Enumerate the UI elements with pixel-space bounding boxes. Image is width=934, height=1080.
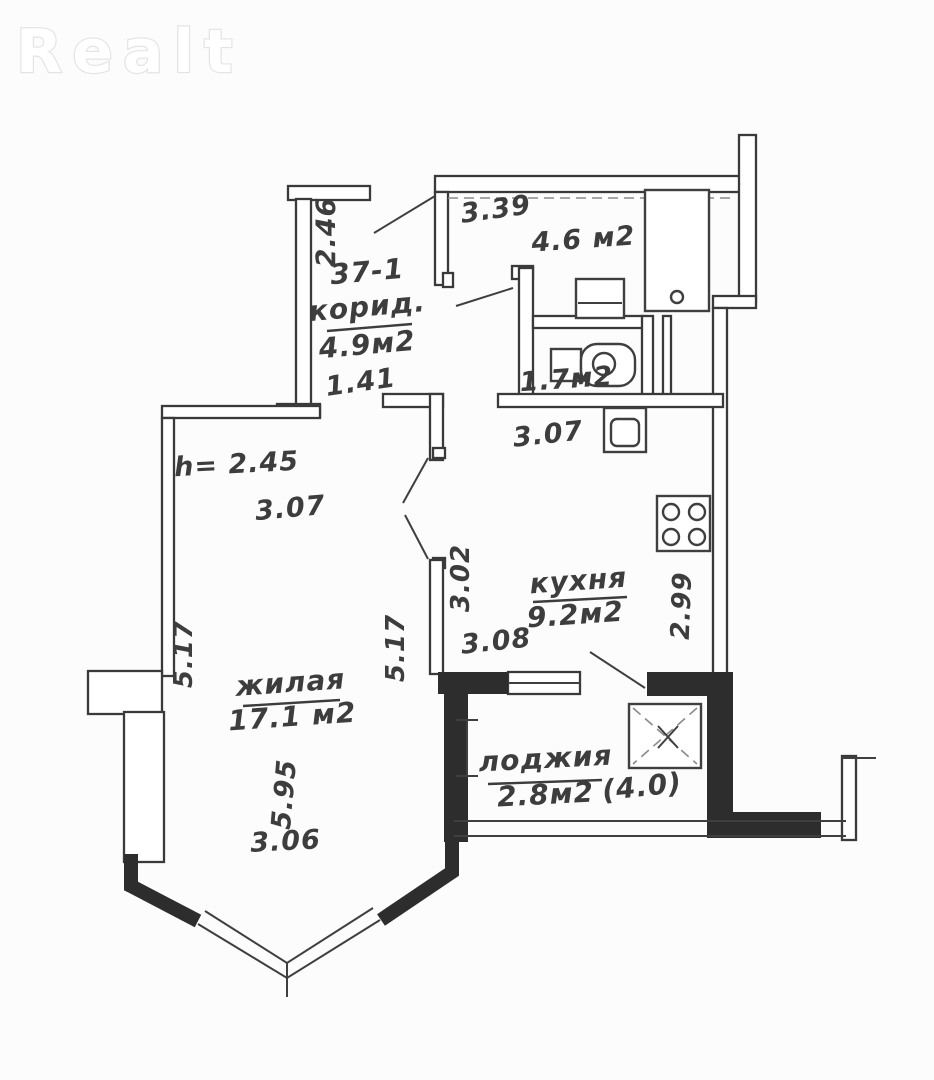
dim-top-width: 3.39 xyxy=(459,189,533,230)
wall-right-thin xyxy=(842,756,856,840)
room-label-loggia: лоджия xyxy=(478,739,613,779)
wall-kitchen-left xyxy=(430,560,443,674)
living-door-leaf-bottom xyxy=(405,515,428,559)
washing-machine-icon xyxy=(576,279,624,318)
wall-right-step xyxy=(713,296,756,308)
dim-hall-width: 3.07 xyxy=(511,415,584,453)
area-bathroom: 1.7м2 xyxy=(519,361,615,398)
entry-door-leaf xyxy=(374,196,435,233)
room-label-corridor: корид. xyxy=(307,285,427,328)
loggia-bottom-right-thick xyxy=(733,812,821,838)
loggia-door-leaf xyxy=(590,652,645,688)
dim-living-lower: 5.95 xyxy=(266,758,303,831)
bay-window-inner xyxy=(205,908,373,963)
door-handle-icon xyxy=(671,291,683,303)
dim-living-right: 5.17 xyxy=(381,614,411,682)
bay-left-thick xyxy=(131,854,198,921)
wall-hinge-bump xyxy=(443,273,453,287)
apartment-number: 37-1 xyxy=(329,252,406,291)
area-kitchen: 9.2м2 xyxy=(526,595,625,635)
bay-right-thick xyxy=(381,842,452,920)
loggia-right-wall-thick xyxy=(707,696,733,838)
dim-living-left: 5.17 xyxy=(169,620,199,688)
dim-living-width: 3.07 xyxy=(254,490,327,527)
vent-shaft-icon xyxy=(629,704,701,768)
dim-kitchen-inner: 3.02 xyxy=(446,544,476,612)
wall-kitchen-right xyxy=(713,308,727,674)
wall-room46-left xyxy=(435,192,448,285)
hall-door-leaf xyxy=(456,288,513,306)
floor-plan: Realt xyxy=(0,0,934,1080)
wall-left-lower xyxy=(124,712,164,862)
wall-hinge-a xyxy=(433,448,445,458)
wall-bath-right xyxy=(642,316,653,402)
sink-icon xyxy=(604,408,646,452)
loggia-left-wall-thick xyxy=(444,684,468,842)
ceiling-height: h= 2.45 xyxy=(173,446,299,483)
wall-left-bump xyxy=(88,671,162,714)
area-top-room: 4.6 м2 xyxy=(529,220,636,258)
loggia-top-right-thick xyxy=(647,672,733,696)
realt-logo: Realt xyxy=(16,17,243,87)
living-door-leaf-top xyxy=(403,458,428,503)
dim-bay-width: 3.06 xyxy=(249,824,321,859)
wall-duct xyxy=(663,316,671,402)
wall-living-top xyxy=(162,406,320,418)
stove-icon xyxy=(657,496,710,551)
area-loggia: 2.8м2 xyxy=(496,775,595,813)
bay-window-outer xyxy=(198,920,380,978)
area-loggia-alt: (4.0) xyxy=(600,766,683,807)
wall-right-upper xyxy=(739,135,756,302)
dim-kitchen-bottom: 3.08 xyxy=(459,622,532,660)
dim-kitchen-height: 2.99 xyxy=(666,571,698,640)
